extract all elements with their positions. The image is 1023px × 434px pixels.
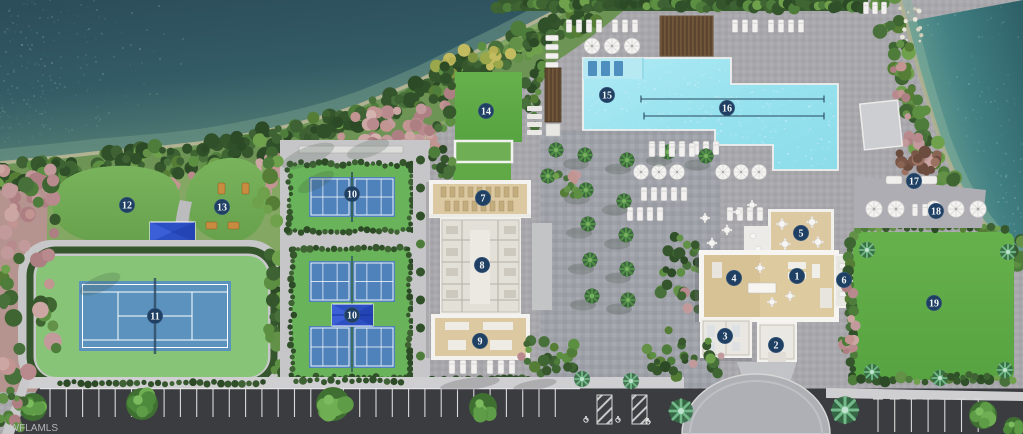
- svg-text:11: 11: [150, 311, 159, 322]
- svg-text:8: 8: [480, 260, 485, 271]
- svg-text:9: 9: [478, 336, 483, 347]
- svg-text:3: 3: [723, 331, 728, 342]
- svg-text:19: 19: [929, 298, 939, 309]
- svg-text:2: 2: [774, 340, 779, 351]
- svg-text:17: 17: [909, 176, 919, 187]
- svg-text:10: 10: [347, 310, 357, 321]
- svg-text:14: 14: [481, 106, 491, 117]
- svg-text:SWFLAMLS: SWFLAMLS: [3, 423, 58, 434]
- svg-text:13: 13: [217, 202, 227, 213]
- svg-text:10: 10: [347, 189, 357, 200]
- svg-text:15: 15: [602, 90, 612, 101]
- svg-text:12: 12: [122, 200, 132, 211]
- svg-text:5: 5: [799, 228, 804, 239]
- svg-text:7: 7: [481, 193, 486, 204]
- svg-text:1: 1: [795, 271, 800, 282]
- svg-text:18: 18: [931, 206, 941, 217]
- svg-text:4: 4: [732, 273, 737, 284]
- svg-text:6: 6: [842, 275, 847, 286]
- svg-text:16: 16: [722, 103, 732, 114]
